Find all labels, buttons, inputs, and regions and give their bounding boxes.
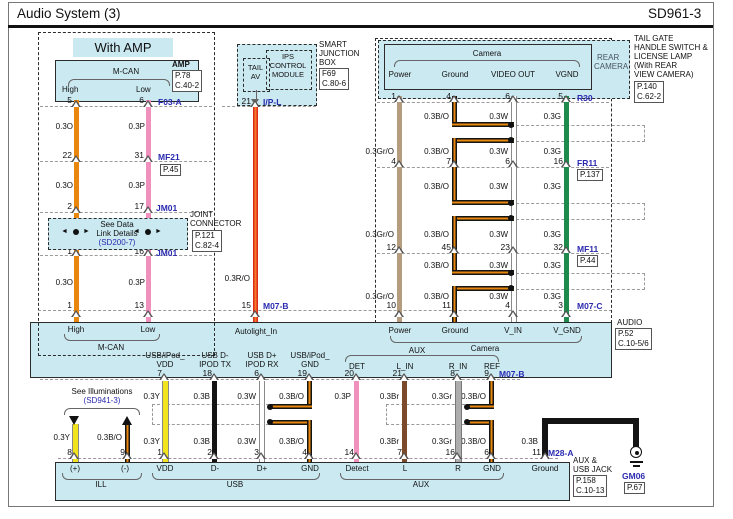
- connector-mf21: MF21: [158, 152, 180, 162]
- jack-usb-dminus: D-: [200, 464, 230, 473]
- rear-camera-text-1: REAR: [597, 53, 619, 62]
- camera-box-title: Camera: [384, 49, 590, 58]
- audio-mcan-low: Low: [132, 325, 164, 334]
- connector-chevron: [399, 373, 409, 380]
- connector-chevron: [561, 160, 571, 167]
- wire-size-label: 0.3O: [43, 181, 73, 190]
- connector-chevron: [508, 160, 518, 167]
- connector-chevron: [561, 95, 571, 102]
- connector-chevron: [351, 373, 361, 380]
- wire-size-label: 0.3B: [178, 392, 210, 401]
- shield-dot: [267, 419, 273, 425]
- ground-symbol-bar1: [630, 461, 643, 463]
- shield-dot: [508, 270, 514, 276]
- jack-aux-gnd: GND: [477, 464, 507, 473]
- tailgate-text-5: VIEW CAMERA): [634, 70, 694, 79]
- tailgate-text-1: TAIL GATE: [634, 34, 673, 43]
- jack-ground: Ground: [525, 464, 565, 473]
- connector-chevron: [486, 373, 496, 380]
- wire-size-label: 0.3B: [506, 437, 538, 446]
- connector-chevron: [399, 452, 409, 459]
- shield-dot: [508, 285, 514, 291]
- wire-size-label: 0.3B/O: [272, 392, 304, 401]
- jack-usb-gnd: GND: [295, 464, 325, 473]
- wire-size-label: 0.3Y: [38, 433, 70, 442]
- connector-chevron: [394, 95, 404, 102]
- shield-dashed-loop: [516, 273, 645, 290]
- connector-m28a: M28-A: [548, 448, 574, 458]
- wire-size-label: 0.3P: [115, 278, 145, 287]
- connector-chevron: [304, 452, 314, 459]
- audio-camera-brace: [390, 336, 582, 343]
- camera-pin-ground: Ground: [435, 70, 475, 79]
- left-arrow-icon: ◄: [133, 228, 140, 236]
- ground-symbol-dot: [635, 451, 639, 455]
- connector-chevron: [143, 100, 153, 107]
- audio-ref-page: P.52: [618, 329, 649, 339]
- audio-mcan-brace: [64, 334, 160, 341]
- wire-size-label: 0.3B/O: [417, 230, 449, 239]
- audio-ref-conn: C.10-5/6: [618, 339, 649, 349]
- connector-f03a: F03-A: [158, 97, 182, 107]
- connector-fr11: FR11: [577, 158, 597, 168]
- connector-chevron: [561, 310, 571, 317]
- audio-ref: P.52 C.10-5/6: [615, 328, 652, 350]
- jack-ill-plus: (+): [60, 464, 90, 473]
- joint-name-2: CONNECTOR: [190, 219, 241, 228]
- right-arrow-icon: ►: [155, 228, 162, 236]
- camera-pin-power: Power: [380, 70, 420, 79]
- wire-camera-ground: [452, 138, 457, 205]
- ground-elbow: [452, 138, 514, 143]
- usb-shield-dashed: [152, 404, 269, 425]
- wire-ground-vertical-right: [633, 418, 639, 447]
- pin-label: 3: [550, 301, 563, 310]
- wire-size-label: 0.3G: [529, 292, 561, 301]
- audio-name: AUDIO: [617, 318, 642, 327]
- connector-chevron: [452, 373, 462, 380]
- connector-chevron: [508, 246, 518, 253]
- pin-label: 1: [59, 301, 72, 310]
- pin-label: 13: [131, 301, 144, 310]
- connector-chevron: [256, 452, 266, 459]
- joint-ref-page: P.121: [195, 231, 219, 241]
- joint-dot: [145, 229, 151, 235]
- wire-size-label: 0.3P: [115, 122, 145, 131]
- shield-dashed-loop: [516, 125, 645, 142]
- joint-ref-conn: C.82-4: [195, 241, 219, 251]
- wire-size-label: 0.3P: [319, 392, 351, 401]
- right-arrow-icon: ►: [83, 228, 90, 236]
- wire-size-label: 0.3Gr/O: [362, 147, 394, 156]
- row-line-mf21: [40, 161, 212, 162]
- aux-shield-dashed: [386, 404, 465, 425]
- jack-ref-page: P.158: [576, 476, 604, 486]
- audio-camera-label: Camera: [462, 344, 508, 353]
- wire-size-label: 0.3R/O: [218, 274, 250, 283]
- connector-chevron: [71, 206, 81, 213]
- pin-label: 15: [238, 301, 251, 310]
- wire-ground-horizontal: [542, 418, 639, 424]
- amp-ref-page: P.78: [175, 71, 199, 81]
- connector-chevron: [394, 160, 404, 167]
- sjb-name-3: BOX: [319, 58, 336, 67]
- camera-box-brace: [394, 60, 580, 67]
- connector-chevron: [143, 155, 153, 162]
- wire-size-label: 0.3O: [43, 278, 73, 287]
- amp-ref: P.78 C.40-2: [172, 70, 202, 92]
- fr11-ref: P.137: [577, 169, 603, 181]
- connector-gm06: GM06: [622, 471, 645, 481]
- sjb-ref-page: C.80-6: [322, 79, 346, 89]
- jack-aux-group: AUX: [406, 480, 436, 489]
- tailgate-text-4: (With REAR: [634, 61, 677, 70]
- connector-chevron: [540, 452, 550, 459]
- joint-dot: [73, 229, 79, 235]
- jack-usb-dplus: D+: [247, 464, 277, 473]
- joint-text-1: See Data: [48, 220, 186, 229]
- joint-ref: P.121 C.82-4: [192, 230, 222, 252]
- ips-text-3: MODULE: [266, 71, 310, 80]
- ground-elbow: [452, 270, 514, 275]
- jack-aux-right: R: [443, 464, 473, 473]
- wire-size-label: 0.3B/O: [417, 182, 449, 191]
- jack-aux-brace: [340, 473, 504, 480]
- wire-size-label: 0.3Br: [367, 392, 399, 401]
- connector-chevron: [486, 452, 496, 459]
- ground-elbow: [270, 404, 312, 409]
- wire-size-label: 0.3G: [529, 261, 561, 270]
- title-rule: [8, 25, 713, 28]
- wire-size-label: 0.3W: [476, 112, 508, 121]
- wire-size-label: 0.3W: [224, 392, 256, 401]
- ground-symbol-bar2: [633, 465, 640, 467]
- wire-usb-dplus: [259, 381, 265, 462]
- mf21-ref: P.45: [160, 164, 181, 176]
- sjb-name-2: JUNCTION: [319, 49, 359, 58]
- connector-chevron: [351, 452, 361, 459]
- connector-chevron: [122, 452, 132, 459]
- wire-autolight-red: [253, 104, 258, 322]
- row-line-fr11: [377, 167, 609, 168]
- tailgate-text-2: HANDLE SWITCH &: [634, 43, 708, 52]
- connector-chevron: [143, 310, 153, 317]
- wire-aux-right: [455, 381, 462, 462]
- mf21-ref-page: P.45: [163, 165, 178, 175]
- wire-aux-left: [402, 381, 407, 462]
- shield-dot: [267, 404, 273, 410]
- wire-size-label: 0.3W: [476, 182, 508, 191]
- wiring-diagram-page: Audio System (3) SD961-3 With AMP M-CAN …: [0, 0, 733, 519]
- wire-size-label: 0.3Br: [367, 437, 399, 446]
- connector-chevron: [256, 373, 266, 380]
- connector-chevron: [143, 206, 153, 213]
- jack-name-1: AUX &: [573, 456, 597, 465]
- wire-usb-dminus: [212, 381, 217, 462]
- wire-size-label: 0.3B/O: [417, 147, 449, 156]
- sjb-ref: F69 C.80-6: [319, 68, 349, 90]
- jack-ill-minus: (-): [110, 464, 140, 473]
- row-line-r30: [377, 102, 609, 103]
- wire-size-label: 0.3O: [43, 122, 73, 131]
- connector-chevron: [394, 246, 404, 253]
- wire-size-label: 0.3P: [115, 181, 145, 190]
- audio-usb-vdd-1: USB/iPod_: [137, 351, 193, 360]
- joint-name-1: JOINT: [190, 210, 213, 219]
- wire-size-label: 0.3B/O: [90, 433, 122, 442]
- pin-label: 10: [381, 301, 396, 310]
- jack-name-2: USB JACK: [573, 465, 612, 474]
- connector-chevron: [159, 452, 169, 459]
- connector-chevron: [209, 452, 219, 459]
- audio-aux-label: AUX: [405, 346, 429, 355]
- wire-aux-detect: [354, 381, 359, 462]
- tail-av-text-2: AV: [243, 73, 268, 82]
- wire-size-label: 0.3G: [529, 147, 561, 156]
- amp-mcan-brace: [68, 79, 170, 86]
- gm06-ref-page: P.67: [627, 483, 642, 493]
- illumination-arrow-up: [122, 416, 132, 425]
- audio-camera-ground: Ground: [435, 326, 475, 335]
- amp-mcan-high: High: [62, 85, 78, 94]
- with-amp-label: With AMP: [73, 38, 173, 57]
- left-arrow-icon: ◄: [61, 228, 68, 236]
- tailgate-ref: P.140 C.62-2: [634, 81, 664, 103]
- connector-chevron: [561, 246, 571, 253]
- jack-usb-brace: [152, 473, 320, 480]
- gm06-ref: P.67: [624, 482, 645, 494]
- mf11-ref-page: P.44: [580, 256, 595, 266]
- wire-size-label: 0.3Y: [128, 437, 160, 446]
- ground-elbow: [452, 200, 514, 205]
- connector-chevron: [250, 310, 260, 317]
- amp-ref-conn: C.40-2: [175, 81, 199, 91]
- connector-chevron: [449, 160, 459, 167]
- connector-chevron: [159, 373, 169, 380]
- tailgate-ref-conn: C.62-2: [637, 92, 661, 102]
- wire-size-label: 0.3W: [476, 230, 508, 239]
- camera-pin-videoout: VIDEO OUT: [488, 70, 538, 79]
- connector-chevron: [209, 373, 219, 380]
- shield-dot: [508, 122, 514, 128]
- wire-size-label: 0.3B/O: [417, 261, 449, 270]
- see-illuminations-ref: (SD941-3): [42, 396, 162, 405]
- shield-dot: [508, 215, 514, 221]
- connector-m07b-autolight: M07-B: [263, 301, 289, 311]
- row-line-f03a: [40, 106, 212, 107]
- row-line-mf11: [377, 253, 609, 254]
- pin-label: 11: [436, 301, 451, 310]
- wire-size-label: 0.3B: [178, 437, 210, 446]
- wire-usb-vdd: [162, 381, 169, 462]
- shield-dot: [508, 200, 514, 206]
- wire-size-label: 0.3W: [476, 147, 508, 156]
- jack-ill-brace: [62, 473, 142, 480]
- jack-ref: P.158 C.10-13: [573, 475, 607, 497]
- connector-chevron: [250, 100, 260, 107]
- see-illuminations-text: See Illuminations: [42, 387, 162, 396]
- connector-m07b-bottom: M07-B: [499, 369, 525, 379]
- wire-camera-vgnd: [564, 96, 569, 322]
- connector-chevron: [449, 310, 459, 317]
- connector-chevron: [69, 452, 79, 459]
- connector-r30: R30: [577, 93, 593, 103]
- joint-text-2: Link Details: [48, 229, 186, 238]
- illumination-arrow-down: [69, 416, 79, 425]
- wire-size-label: 0.3B/O: [272, 437, 304, 446]
- pin-label: 11: [526, 448, 541, 457]
- connector-chevron: [143, 249, 153, 256]
- connector-chevron: [71, 249, 81, 256]
- connector-chevron: [71, 100, 81, 107]
- jack-usb-vdd: VDD: [150, 464, 180, 473]
- ground-elbow: [270, 420, 312, 425]
- audio-usb-gnd-2: GND: [282, 360, 338, 369]
- page-title: Audio System (3): [17, 6, 121, 21]
- jack-ref-conn: C.10-13: [576, 486, 604, 496]
- audio-usb-vdd-2: VDD: [137, 360, 193, 369]
- sjb-ref-conn: F69: [322, 69, 346, 79]
- connector-chevron: [71, 310, 81, 317]
- ground-elbow: [452, 216, 514, 221]
- jack-aux-left: L: [390, 464, 420, 473]
- connector-mf11: MF11: [577, 244, 598, 254]
- audio-mcan-label: M-CAN: [85, 343, 137, 352]
- jack-usb-group: USB: [220, 480, 250, 489]
- connector-chevron: [71, 155, 81, 162]
- connector-chevron: [508, 310, 518, 317]
- amp-mcan-low: Low: [136, 85, 151, 94]
- ground-elbow: [452, 122, 514, 127]
- ground-elbow: [467, 404, 494, 409]
- rear-camera-text-2: CAMERA: [594, 62, 628, 71]
- wire-size-label: 0.3G: [529, 112, 561, 121]
- camera-pin-vgnd: VGND: [547, 70, 587, 79]
- shield-dashed-loop: [516, 203, 645, 220]
- wire-size-label: 0.3G: [529, 182, 561, 191]
- connector-ipl: I/P-L: [263, 97, 281, 107]
- row-line-m07b: [40, 379, 520, 380]
- jack-aux-detect: Detect: [340, 464, 374, 473]
- page-code: SD961-3: [648, 6, 701, 21]
- connector-chevron: [394, 310, 404, 317]
- wire-size-label: 0.3Gr: [420, 392, 452, 401]
- shield-dot: [508, 137, 514, 143]
- pin-label: 4: [495, 301, 510, 310]
- tailgate-ref-page: P.140: [637, 82, 661, 92]
- wire-size-label: 0.3G: [529, 230, 561, 239]
- wire-size-label: 0.3W: [476, 261, 508, 270]
- sjb-name-1: SMART: [319, 40, 347, 49]
- audio-usb-gnd-1: USB/iPod_: [282, 351, 338, 360]
- audio-camera-vgnd: V_GND: [545, 326, 589, 335]
- audio-aux-brace: [345, 355, 499, 362]
- connector-chevron: [304, 373, 314, 380]
- fr11-ref-page: P.137: [580, 170, 600, 180]
- connector-chevron: [452, 452, 462, 459]
- connector-chevron: [449, 246, 459, 253]
- mf11-ref: P.44: [577, 255, 598, 267]
- wire-size-label: 0.3Gr: [420, 437, 452, 446]
- connector-m07c: M07-C: [577, 301, 603, 311]
- shield-dot: [464, 404, 470, 410]
- audio-camera-vin: V_IN: [493, 326, 533, 335]
- row-line-jm01-top: [40, 212, 212, 213]
- jack-ill-group: ILL: [86, 480, 116, 489]
- connector-chevron: [508, 95, 518, 102]
- ground-elbow: [452, 286, 514, 291]
- audio-camera-power: Power: [380, 326, 420, 335]
- wire-size-label: 0.3W: [476, 292, 508, 301]
- joint-text-ref: (SD200-7): [48, 238, 186, 247]
- wire-size-label: 0.3B/O: [417, 112, 449, 121]
- wire-size-label: 0.3W: [224, 437, 256, 446]
- wire-camera-power: [397, 96, 402, 322]
- wire-size-label: 0.3Gr/O: [362, 230, 394, 239]
- connector-chevron: [449, 95, 459, 102]
- audio-mcan-high: High: [60, 325, 92, 334]
- connector-jm01-top: JM01: [156, 203, 177, 213]
- audio-autolight: Autolight_In: [226, 327, 286, 336]
- tailgate-text-3: LICENSE LAMP: [634, 52, 692, 61]
- amp-name: AMP: [172, 60, 190, 69]
- see-illuminations-brace: [64, 408, 140, 415]
- shield-dot: [464, 419, 470, 425]
